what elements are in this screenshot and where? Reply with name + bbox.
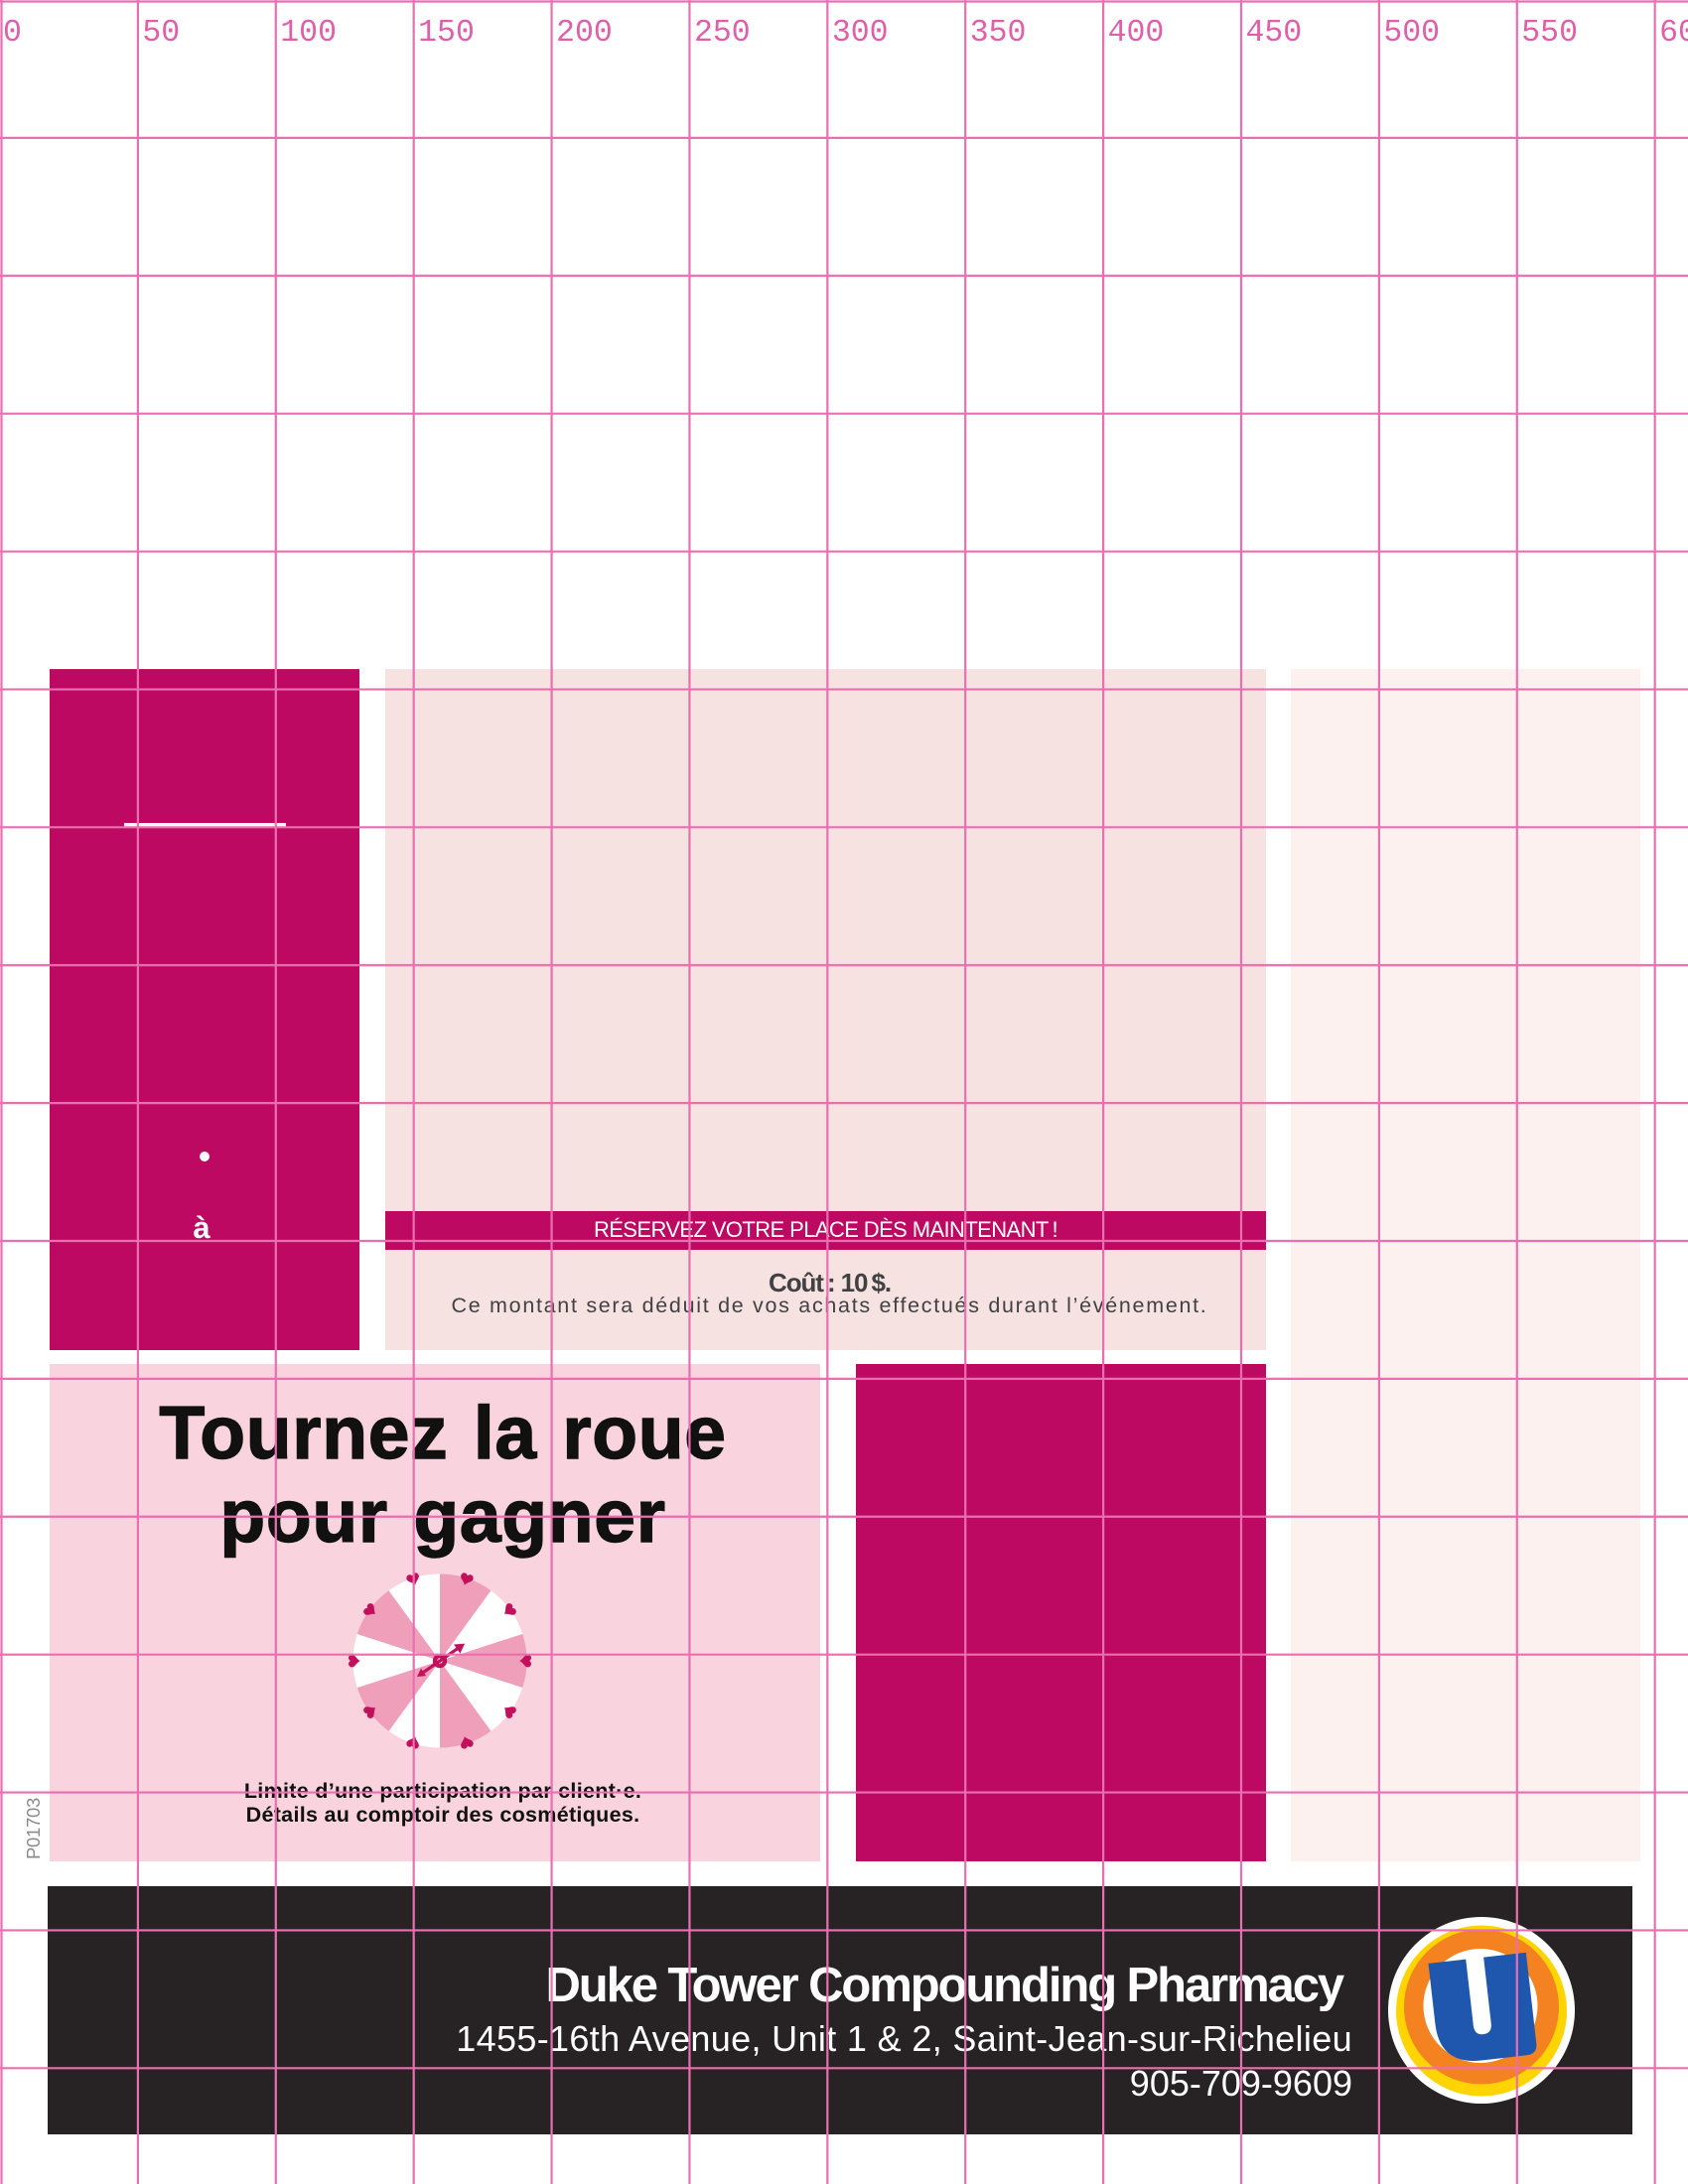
- svg-text:100: 100: [280, 16, 337, 51]
- svg-text:500: 500: [1383, 16, 1440, 51]
- svg-text:600: 600: [1659, 16, 1688, 51]
- svg-text:250: 250: [694, 16, 751, 51]
- svg-text:200: 200: [556, 16, 613, 51]
- svg-text:450: 450: [1246, 16, 1303, 51]
- svg-text:50: 50: [142, 16, 180, 51]
- svg-text:0: 0: [3, 16, 22, 51]
- svg-text:400: 400: [1108, 16, 1165, 51]
- svg-text:550: 550: [1521, 16, 1578, 51]
- svg-text:150: 150: [418, 16, 475, 51]
- svg-text:350: 350: [970, 16, 1027, 51]
- svg-text:300: 300: [832, 16, 889, 51]
